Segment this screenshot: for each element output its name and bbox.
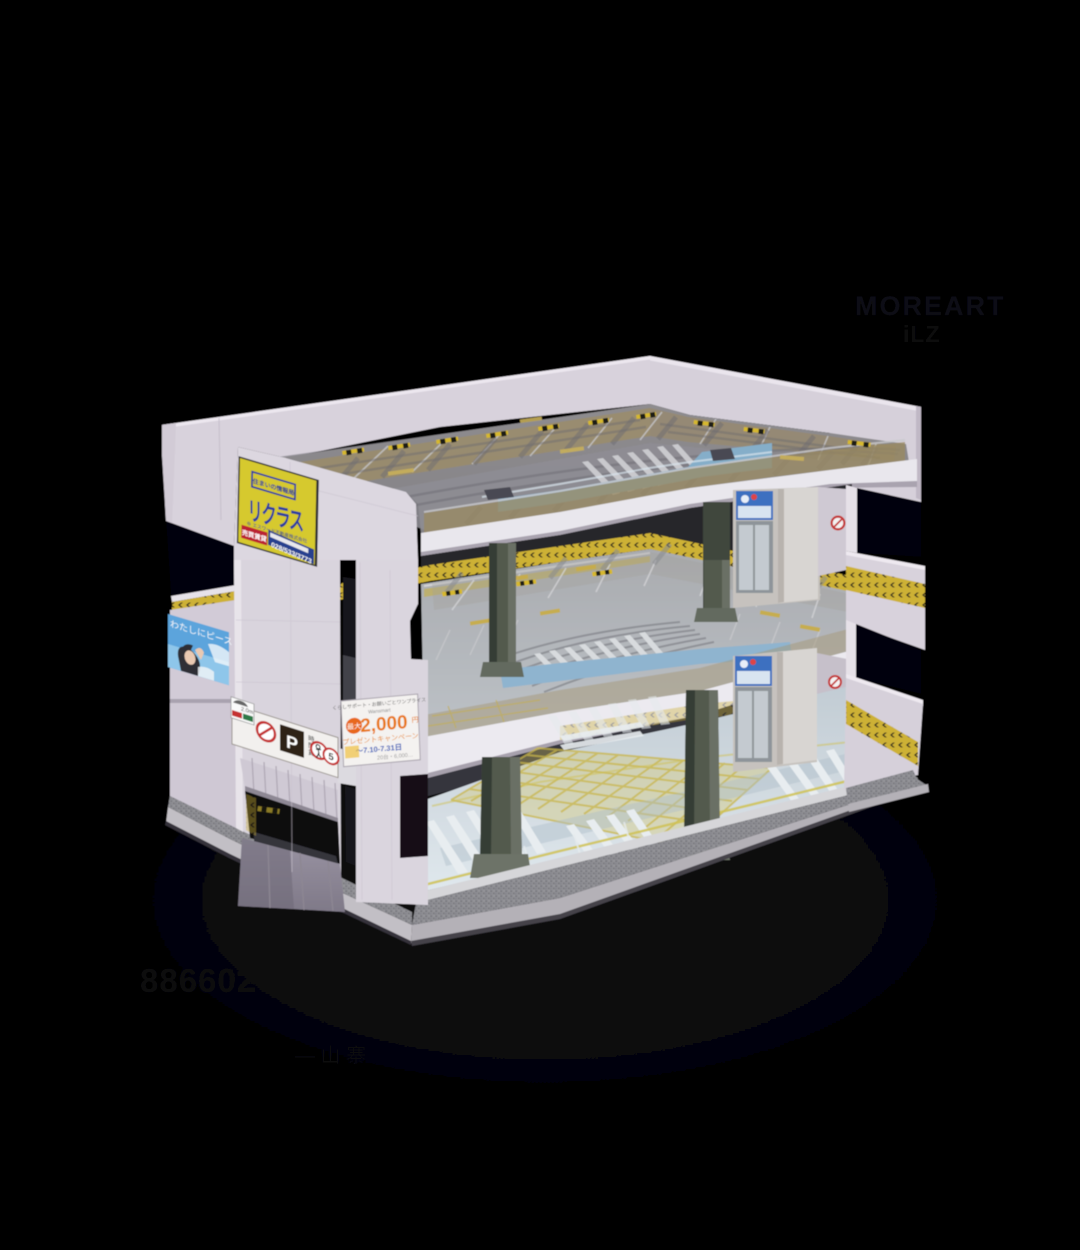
svg-text:2,000: 2,000	[360, 712, 408, 737]
svg-text:886602: 886602	[140, 962, 256, 999]
svg-text:iLZ: iLZ	[903, 321, 941, 347]
svg-text:P: P	[286, 731, 298, 755]
svg-text:MOREART: MOREART	[855, 291, 1006, 321]
svg-text:— 山 寨: — 山 寨	[295, 1044, 366, 1067]
svg-text:円: 円	[412, 716, 419, 725]
svg-text:5: 5	[328, 751, 334, 764]
